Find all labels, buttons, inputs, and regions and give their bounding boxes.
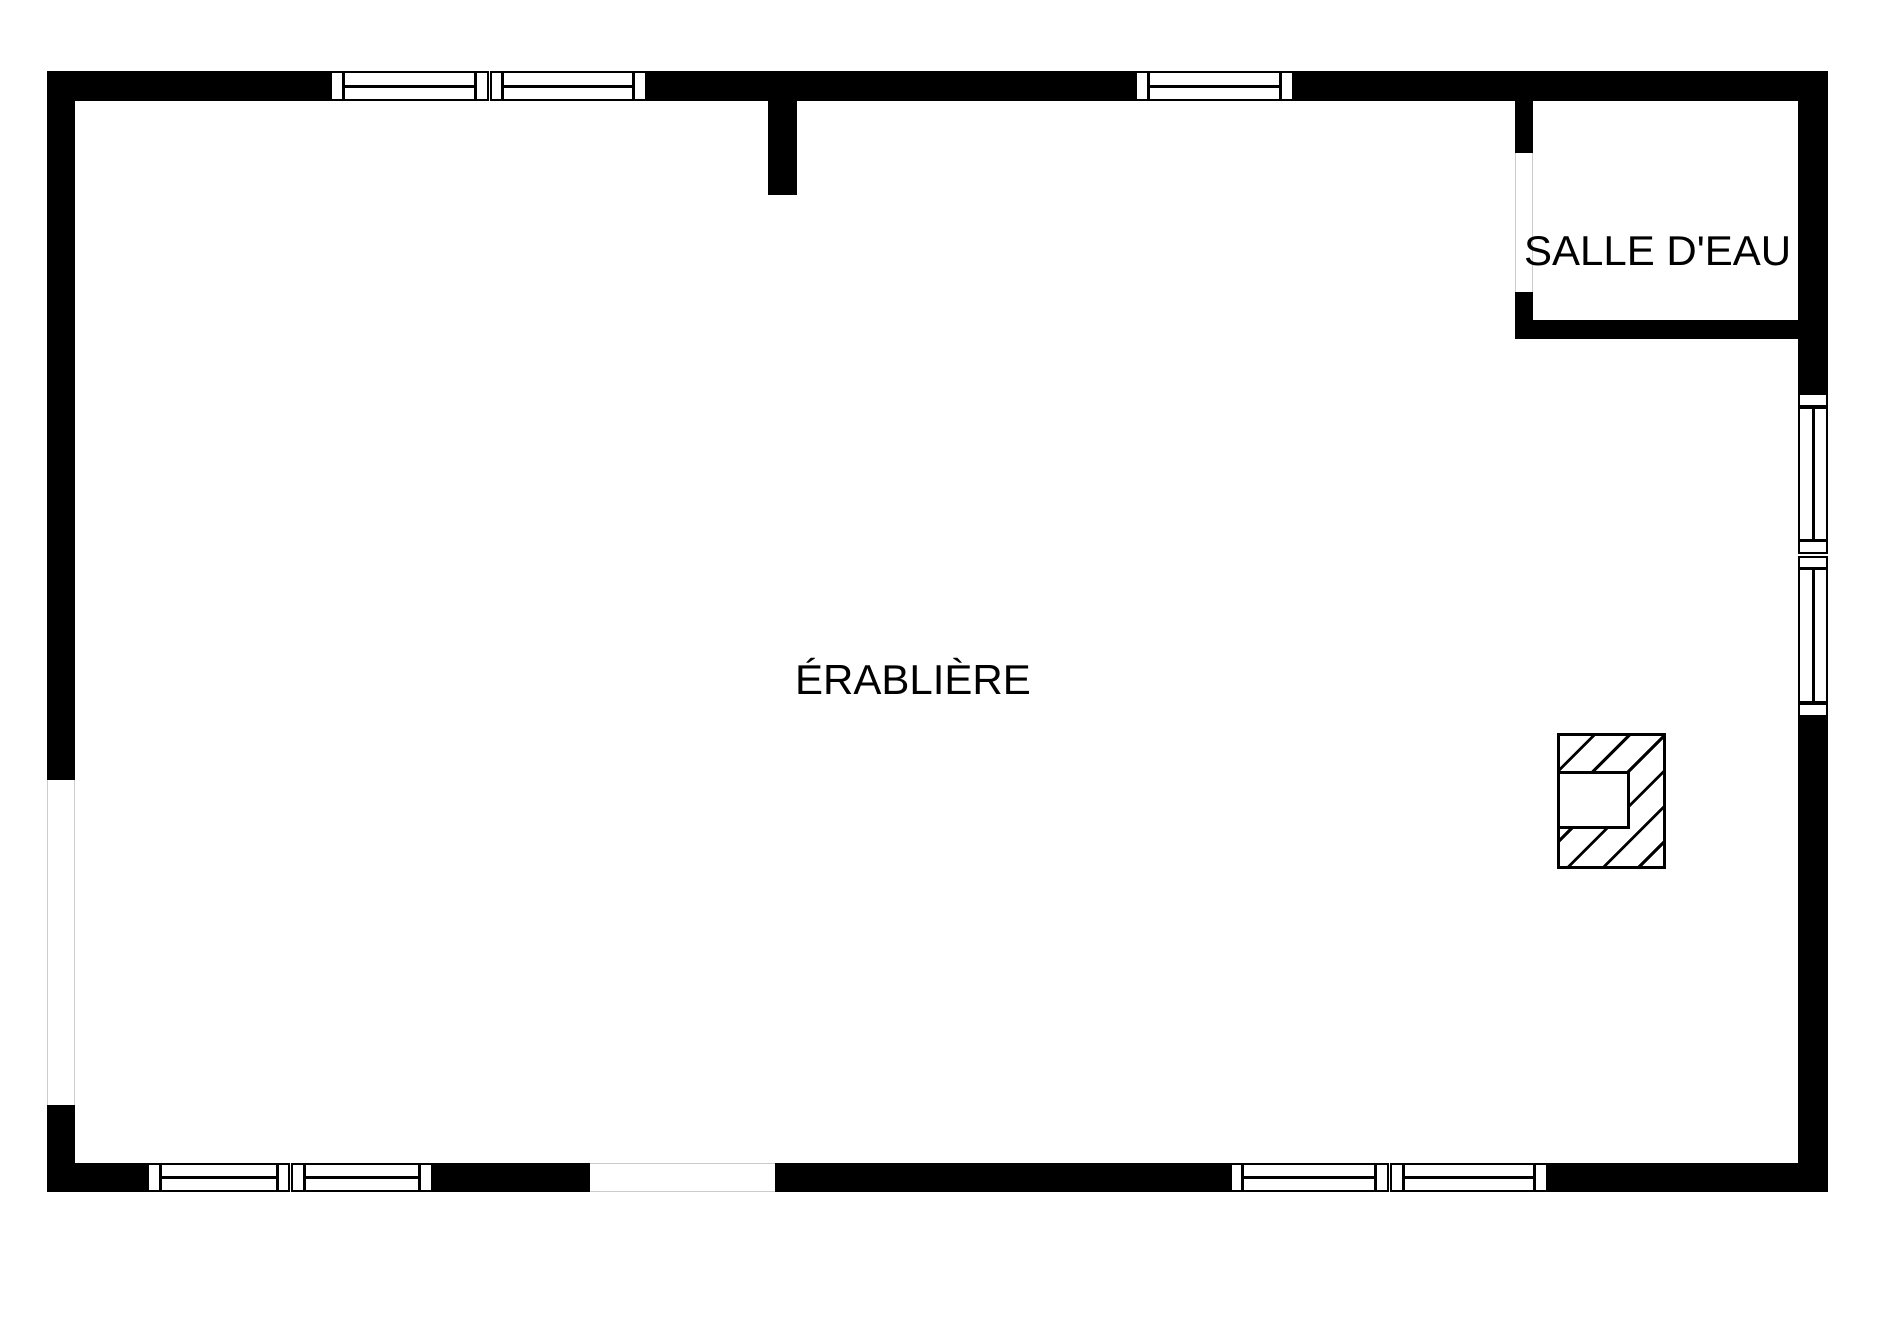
bottom-wall-door-opening — [590, 1163, 775, 1192]
window-frame-cap — [1135, 71, 1149, 101]
window-right-wall-1 — [1798, 407, 1828, 541]
bathroom-left-wall-upper — [1515, 101, 1533, 153]
bathroom-bottom-wall — [1515, 320, 1798, 339]
window-frame-cap — [1280, 71, 1294, 101]
right-wall-lower — [1798, 717, 1828, 1192]
chimney-symbol — [1557, 733, 1666, 869]
window-bottom-right-2 — [1403, 1163, 1535, 1192]
top-wall-segment-left — [47, 71, 330, 101]
bottom-wall-segment-1 — [47, 1163, 147, 1192]
window-frame-cap — [330, 71, 344, 101]
window-frame-cap — [1375, 1163, 1389, 1192]
chimney-flue-notch — [1557, 771, 1630, 829]
window-frame-cap — [633, 71, 647, 101]
window-frame-cap — [147, 1163, 161, 1192]
bottom-wall-segment-4 — [1547, 1163, 1828, 1192]
window-top-left-1 — [343, 71, 476, 101]
window-bottom-right-1 — [1242, 1163, 1376, 1192]
window-frame-cap — [277, 1163, 290, 1192]
window-top-left-2 — [502, 71, 634, 101]
window-frame-cap — [1534, 1163, 1548, 1192]
right-wall-upper — [1798, 71, 1828, 393]
window-frame-cap — [1798, 393, 1828, 407]
left-wall-upper — [47, 71, 75, 780]
window-bottom-left-2 — [304, 1163, 420, 1192]
window-frame-cap — [475, 71, 489, 101]
window-frame-cap — [1798, 703, 1828, 717]
window-frame-cap — [291, 1163, 305, 1192]
top-wall-segment-right — [1293, 71, 1828, 101]
bathroom-label: SALLE D'EAU — [1524, 230, 1791, 272]
left-wall-opening — [47, 780, 75, 1105]
window-bottom-left-1 — [160, 1163, 278, 1192]
window-right-wall-2 — [1798, 568, 1828, 703]
bottom-wall-segment-2 — [433, 1163, 590, 1192]
floor-plan: ÉRABLIÈRE SALLE D'EAU — [0, 0, 1878, 1336]
top-wall-segment-middle — [646, 71, 1135, 101]
interior-wall-stub — [768, 101, 797, 195]
window-top-right — [1148, 71, 1281, 101]
bottom-wall-segment-3 — [775, 1163, 1230, 1192]
window-frame-cap — [1390, 1163, 1404, 1192]
window-frame-cap — [1798, 540, 1828, 554]
main-room-label: ÉRABLIÈRE — [795, 659, 1031, 701]
window-frame-cap — [419, 1163, 433, 1192]
